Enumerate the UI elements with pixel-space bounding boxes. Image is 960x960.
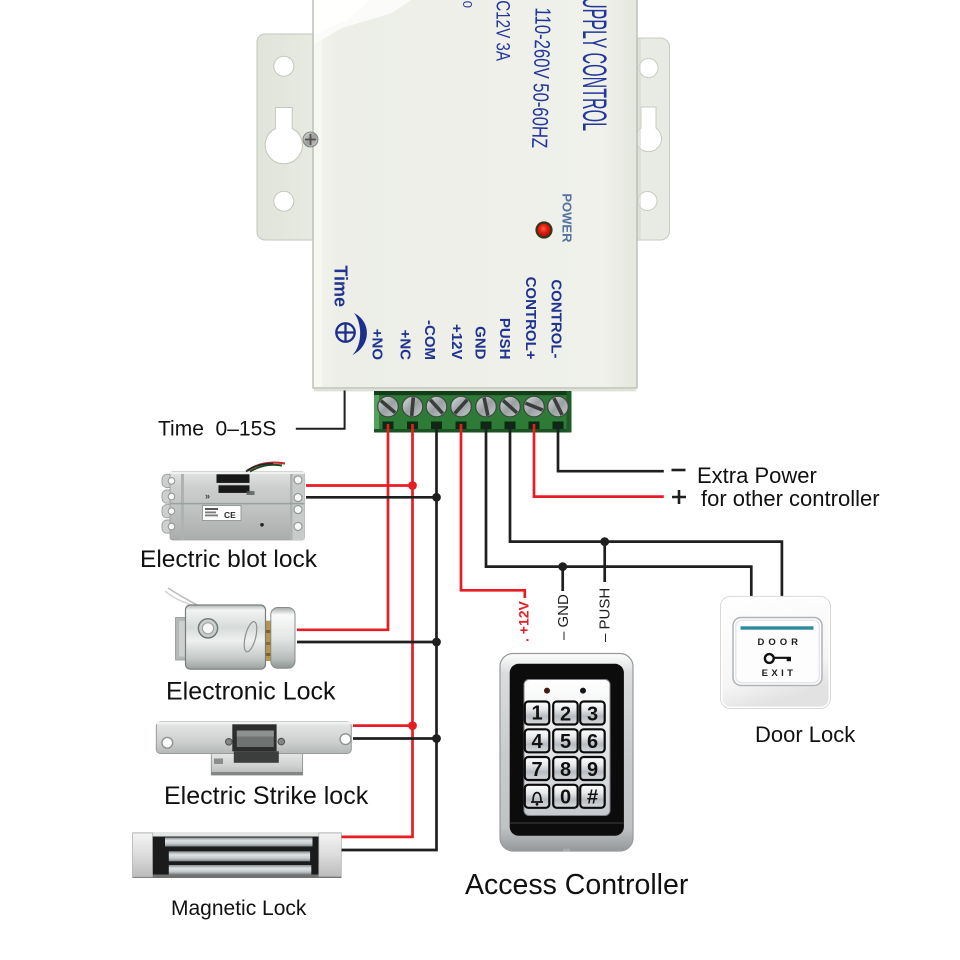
svg-text:CONTROL-: CONTROL- [548, 279, 565, 358]
svg-text:+NC: +NC [397, 330, 414, 361]
svg-text:GND: GND [472, 326, 489, 360]
svg-text:DOOR: DOOR [758, 637, 803, 648]
svg-text:0: 0 [460, 1, 475, 8]
svg-text:. +12V: . +12V [516, 600, 532, 642]
svg-text:Extra Power: Extra Power [697, 463, 817, 488]
svg-text:9: 9 [587, 759, 598, 781]
svg-text:0: 0 [560, 787, 571, 809]
svg-text:Electronic Lock: Electronic Lock [166, 678, 336, 706]
svg-text:CONTROL+: CONTROL+ [522, 277, 539, 360]
svg-text:Magnetic Lock: Magnetic Lock [171, 897, 307, 920]
svg-text:»: » [205, 491, 210, 501]
svg-text:2: 2 [560, 703, 571, 725]
svg-text:– PUSH: – PUSH [597, 588, 614, 642]
svg-text:4: 4 [531, 731, 543, 753]
svg-text:110-260V 50-60HZ: 110-260V 50-60HZ [526, 7, 554, 148]
svg-text:Electric blot lock: Electric blot lock [140, 546, 318, 573]
svg-text:+NO: +NO [369, 329, 386, 361]
svg-text:Door Lock: Door Lock [755, 722, 856, 747]
svg-text:+12V: +12V [448, 324, 465, 359]
svg-text:3: 3 [587, 703, 598, 725]
svg-text:POWER: POWER [560, 193, 575, 243]
svg-text:EXIT: EXIT [762, 668, 797, 679]
svg-text:#: # [587, 787, 598, 809]
svg-text:Time: Time [331, 265, 351, 307]
svg-text:for other controller: for other controller [701, 486, 880, 511]
svg-text:1: 1 [531, 703, 542, 725]
svg-text:Access Controller: Access Controller [465, 869, 689, 901]
svg-text:POWER SUPPLY CONTROL: POWER SUPPLY CONTROL [575, 0, 613, 131]
svg-text:DC12V 3A: DC12V 3A [492, 0, 514, 61]
svg-text:Electric Strike lock: Electric Strike lock [164, 782, 369, 810]
svg-text:6: 6 [587, 731, 598, 753]
svg-text:7: 7 [531, 759, 542, 781]
svg-text:Time 0–15S: Time 0–15S [158, 418, 276, 441]
svg-text:PUSH: PUSH [496, 318, 513, 360]
svg-text:-COM: -COM [421, 320, 438, 360]
svg-text:5: 5 [560, 731, 571, 753]
svg-text:8: 8 [560, 759, 571, 781]
svg-text:– GND: – GND [555, 594, 572, 640]
svg-text:CE: CE [224, 510, 236, 520]
